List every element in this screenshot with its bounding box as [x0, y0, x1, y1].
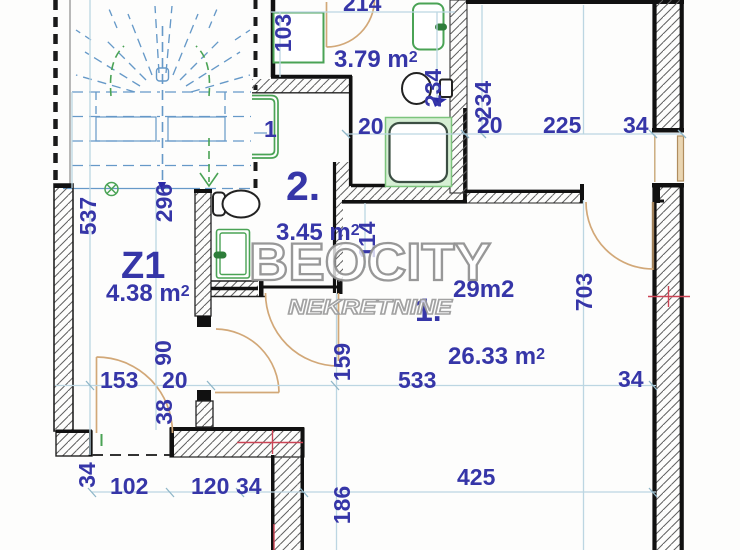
svg-text:BEOCITY: BEOCITY [249, 233, 491, 292]
svg-text:1: 1 [264, 116, 277, 142]
svg-text:NEKRETNINE: NEKRETNINE [288, 296, 453, 319]
svg-text:537: 537 [75, 197, 101, 235]
svg-text:186: 186 [329, 486, 355, 524]
svg-text:4.38 m2: 4.38 m2 [106, 280, 190, 307]
svg-text:34: 34 [74, 462, 100, 488]
svg-text:234: 234 [420, 69, 446, 108]
svg-text:533: 533 [398, 367, 436, 393]
svg-text:34: 34 [236, 473, 262, 499]
svg-text:120: 120 [191, 473, 229, 499]
svg-text:34: 34 [618, 366, 644, 392]
svg-text:102: 102 [110, 473, 148, 499]
svg-text:153: 153 [100, 367, 138, 393]
svg-text:90: 90 [150, 340, 176, 366]
svg-text:225: 225 [543, 112, 582, 138]
svg-text:3.79 m2: 3.79 m2 [334, 46, 418, 73]
svg-text:26.33 m2: 26.33 m2 [448, 343, 545, 370]
svg-text:38: 38 [151, 399, 177, 425]
svg-text:703: 703 [571, 273, 597, 311]
svg-text:103: 103 [270, 14, 296, 52]
svg-text:2.: 2. [286, 163, 320, 209]
svg-text:214: 214 [343, 0, 382, 16]
svg-text:159: 159 [329, 343, 355, 381]
svg-text:20: 20 [477, 112, 503, 138]
svg-text:425: 425 [457, 464, 496, 490]
svg-text:20: 20 [358, 113, 384, 139]
svg-text:20: 20 [162, 367, 188, 393]
svg-text:34: 34 [623, 112, 649, 138]
svg-text:296: 296 [151, 184, 177, 222]
